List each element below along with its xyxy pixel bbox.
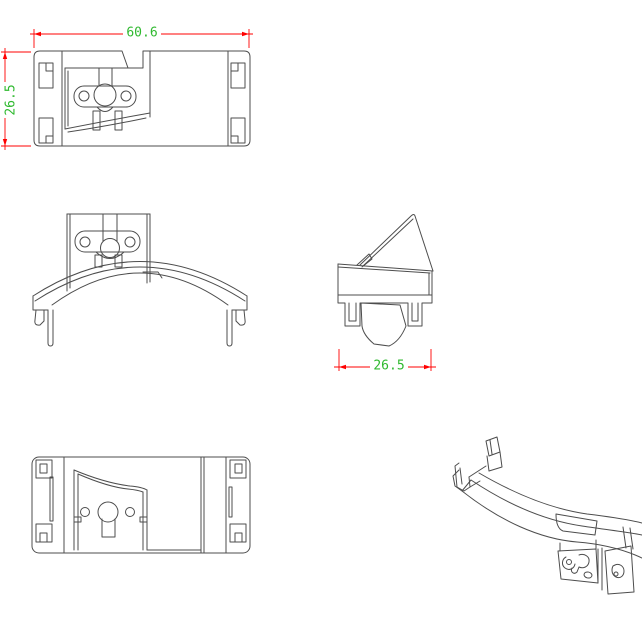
bottom-plate-top-curve-inner <box>78 474 143 492</box>
bottom-view <box>32 457 250 553</box>
side-view <box>338 215 433 347</box>
bottom-clip-tab-upper-right <box>230 460 246 478</box>
side-fin-left-edge-inner <box>363 219 413 266</box>
iso-mount-slot-right <box>612 564 624 577</box>
iso-mount-plate-left <box>558 549 598 583</box>
iso-band-end-fold <box>623 527 633 549</box>
side-leg-inner-right <box>412 303 418 321</box>
side-leg-inner-left <box>349 303 356 321</box>
top-view-mount-hole-right <box>121 91 131 101</box>
iso-band-near-edge <box>462 491 642 558</box>
bottom-hole-left <box>81 508 90 517</box>
bottom-clip-notch-upper-left <box>40 464 47 473</box>
top-view-clip-step-upper-right <box>231 63 238 71</box>
arrowhead-right <box>242 32 249 36</box>
front-view <box>33 214 247 346</box>
iso-mount-hole-left <box>567 560 572 565</box>
bottom-plate-top-curve <box>74 470 147 490</box>
top-view-post-right <box>115 111 122 130</box>
dimension-side-width: 26.5 <box>334 349 436 374</box>
iso-band-top-edge <box>479 473 642 523</box>
top-view-arch-edge-outer <box>65 113 150 129</box>
front-mount-slot-outline <box>75 231 140 252</box>
iso-mount-hole-right <box>614 572 618 576</box>
front-mount-hole-left <box>80 237 90 247</box>
dimension-value: 26.5 <box>373 359 404 374</box>
front-right-hook <box>236 310 245 325</box>
iso-clip-flag <box>486 437 500 456</box>
top-view-mount-hole-left <box>79 91 89 101</box>
top-view-center-bore <box>94 84 116 106</box>
iso-keyhole-curl <box>571 554 589 573</box>
dimension-value: 26.5 <box>4 84 19 115</box>
dimension-value: 60.6 <box>126 26 157 41</box>
iso-hook-bracket <box>455 463 470 491</box>
front-post-left <box>95 255 102 267</box>
bottom-clip-notch-lower-right <box>235 533 242 542</box>
iso-plate-divider-edge <box>598 548 602 590</box>
top-view-clip-step-lower-left <box>46 136 53 143</box>
arrowhead-right <box>424 365 431 369</box>
dimension-top-height: 26.5 <box>1 48 31 150</box>
top-view-clip-step-lower-right <box>231 136 238 143</box>
isometric-view <box>453 437 642 594</box>
top-view-arch-edge-inner <box>68 118 146 132</box>
side-fin-left-edge <box>360 215 433 272</box>
iso-mount-slot-curl-left <box>562 557 575 569</box>
bottom-clip-notch-upper-right <box>235 464 242 473</box>
top-view-outline <box>34 51 250 146</box>
front-left-hook <box>35 310 44 325</box>
bottom-view-outline <box>32 457 250 553</box>
iso-mount-hole-lower <box>583 571 592 579</box>
arrowhead-bottom <box>3 139 7 146</box>
bottom-clip-tab-upper-left <box>36 460 52 478</box>
front-right-leg <box>227 310 232 346</box>
arrowhead-top <box>3 52 7 59</box>
front-left-leg <box>48 310 53 346</box>
bottom-clip-notch-lower-left <box>40 533 47 542</box>
arrowhead-left <box>34 32 41 36</box>
iso-facet-quad <box>556 514 597 535</box>
bottom-right-strip <box>229 487 232 517</box>
top-view-mount-slot-outline <box>74 86 136 107</box>
arrowhead-left <box>339 365 346 369</box>
bottom-hole-right <box>126 508 135 517</box>
top-view-clip-step-upper-left <box>46 63 53 71</box>
dimension-top-width: 60.6 <box>30 26 253 49</box>
bottom-left-strip <box>50 477 53 521</box>
side-hook-blade <box>361 303 406 346</box>
top-view <box>34 51 250 146</box>
front-arch-inner-curve <box>52 273 228 305</box>
front-mount-hole-right <box>125 237 135 247</box>
drawing-canvas: 60.6 26.5 <box>0 0 642 642</box>
